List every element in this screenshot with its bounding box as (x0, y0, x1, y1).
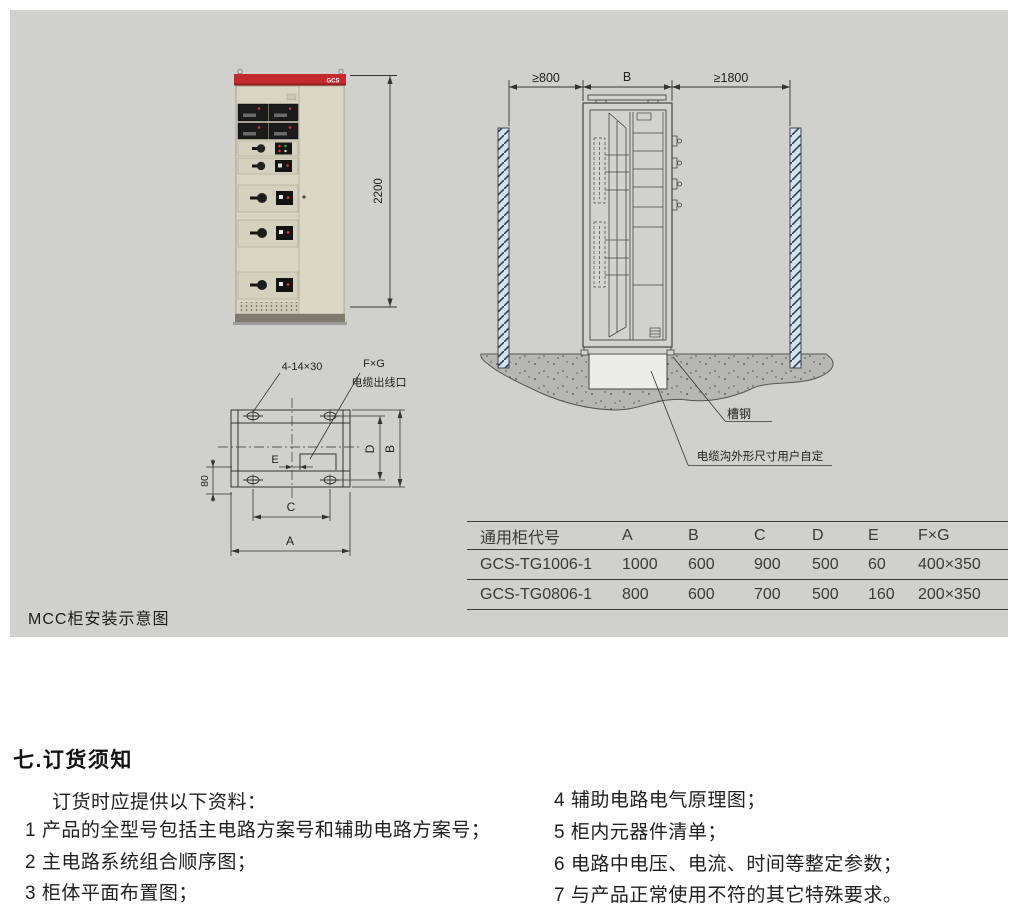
table-cell: 60 (868, 556, 918, 574)
lifting-eye-icon (339, 69, 344, 74)
table-cell: 160 (868, 586, 918, 604)
clearance-left-label: ≥800 (532, 71, 560, 85)
mounting-holes (243, 411, 340, 486)
clearance-right-label: ≥1800 (714, 71, 749, 85)
table-cell: 600 (688, 586, 754, 604)
table-cell: 600 (688, 556, 754, 574)
order-item: 4 辅助电路电气原理图； (554, 785, 766, 812)
table-cell: 1000 (622, 556, 688, 574)
order-item: 1 产品的全型号包括主电路方案号和辅助电路方案号； (25, 815, 490, 842)
dim-d: D (338, 416, 385, 480)
height-dimension: 2200 (350, 76, 397, 308)
order-item: 3 柜体平面布置图； (25, 878, 198, 905)
cable-trench (589, 353, 667, 389)
column-header: 通用柜代号 (480, 524, 622, 548)
column-header: A (622, 527, 688, 545)
table-row: GCS-TG0806-1 800 600 700 500 160 200×350 (467, 580, 1008, 610)
installation-diagram: ≥800 B ≥1800 (470, 60, 850, 480)
height-dim-label: 2200 (373, 178, 385, 204)
table-cell: 500 (812, 556, 868, 574)
cabinet-side-view (581, 95, 682, 355)
mounting-holes-label: 4-14×30 (282, 361, 323, 373)
section-heading: 七.订货须知 (13, 744, 133, 774)
table-cell: 700 (754, 586, 812, 604)
dim-c-label: C (287, 500, 296, 514)
trench-note-label: 电缆沟外形尺寸用户自定 (697, 449, 824, 463)
brand-label: GCS (326, 79, 339, 85)
column-header: F×G (918, 527, 1008, 545)
cabinet-plinth (235, 314, 345, 322)
table-cell: 800 (622, 586, 688, 604)
column-header: E (868, 527, 918, 545)
table-row: GCS-TG1006-1 1000 600 900 500 60 400×350 (467, 550, 1008, 580)
vent-grille (240, 302, 298, 313)
cabinet-photo-drawing: GCS (233, 69, 347, 325)
left-wall (498, 128, 509, 368)
door-handle-icon (302, 195, 305, 198)
table-header-row: 通用柜代号 A B C D E F×G (467, 522, 1008, 550)
dim-e-label: E (271, 454, 278, 466)
drawer-units-tall (238, 185, 298, 299)
table-cell: 200×350 (918, 586, 1008, 604)
channel-steel-label: 槽钢 (727, 407, 751, 421)
dim-b-label: B (383, 445, 397, 453)
order-item: 6 电路中电压、电流、时间等整定参数； (554, 849, 902, 876)
cabinet-door (299, 86, 344, 314)
centerlines (218, 398, 362, 500)
plan-view-diagram: 4-14×30 F×G 电缆出线口 (195, 350, 425, 565)
dim-80-label: 80 (199, 475, 211, 487)
column-header: D (812, 527, 868, 545)
dim-a-label: A (286, 534, 294, 548)
figure-caption: MCC柜安装示意图 (28, 605, 169, 629)
order-item: 5 柜内元器件清单； (554, 817, 727, 844)
cable-outlet-label: 电缆出线口 (352, 375, 407, 389)
column-header: B (688, 527, 754, 545)
column-header: C (754, 527, 812, 545)
cabinet-photo: GCS (225, 60, 400, 345)
order-intro: 订货时应提供以下资料： (52, 787, 267, 814)
table-cell: 500 (812, 586, 868, 604)
width-b-label: B (623, 70, 631, 84)
hinge-knobs (672, 136, 682, 210)
dim-c: C (253, 489, 330, 521)
fxg-label: F×G (363, 358, 385, 370)
cabinet-code-cell: GCS-TG1006-1 (480, 556, 622, 574)
dim-80: 80 (199, 459, 232, 502)
cabinet-code-cell: GCS-TG0806-1 (480, 586, 622, 604)
table-cell: 400×350 (918, 556, 1008, 574)
right-wall (790, 128, 801, 368)
dimension-table: 通用柜代号 A B C D E F×G GCS-TG1006-1 1000 60… (467, 521, 1008, 610)
order-item: 2 主电路系统组合顺序图； (25, 847, 256, 874)
dim-d-label: D (363, 444, 377, 453)
lifting-eye-icon (238, 69, 243, 74)
table-cell: 900 (754, 556, 812, 574)
